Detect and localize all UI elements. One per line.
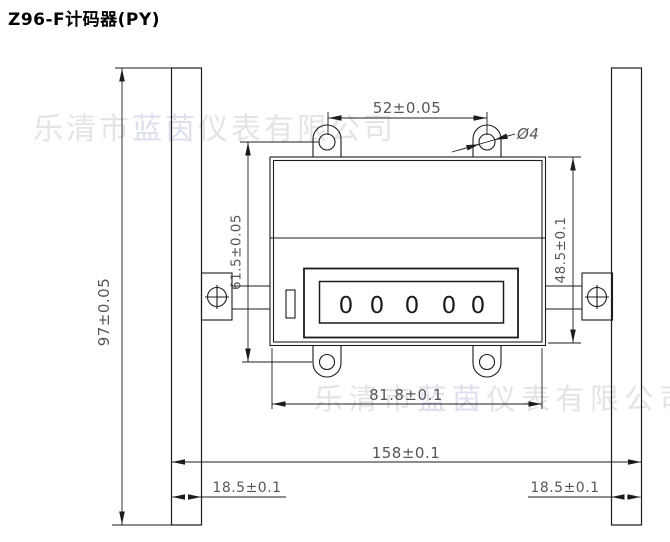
right-din-rail: [612, 68, 642, 525]
dim-hole-diameter: Ø4: [452, 125, 539, 152]
dim-rail-right: 18.5±0.1: [528, 480, 641, 497]
technical-drawing: 乐清市蓝茵仪表有限公司 乐清市蓝茵仪表有限公司: [0, 0, 670, 542]
screw-icon: [585, 285, 609, 309]
counter-digit: 0: [442, 293, 457, 319]
counter-digit: 0: [370, 293, 385, 319]
dimension-label: 18.5±0.1: [212, 480, 281, 496]
mounting-ear-bottom-left: [313, 345, 341, 377]
dim-body-height: 48.5±0.1: [548, 157, 581, 343]
right-mount-bracket: [582, 273, 613, 320]
counter-digit: 0: [405, 293, 420, 319]
dimension-label: 52±0.05: [373, 99, 442, 117]
watermark-company-suffix: 仪表有限公司: [487, 382, 670, 416]
reset-slot: [286, 290, 295, 318]
right-side-tab: [545, 286, 582, 309]
mounting-hole: [320, 355, 335, 370]
watermark-company-prefix: 乐清市: [33, 112, 132, 147]
dimension-label: 97±0.05: [95, 278, 113, 347]
dimension-label: Ø4: [516, 125, 539, 143]
page: { "title": "Z96-F计码器(PY)", "watermark": …: [0, 0, 670, 542]
counter-digit: 0: [339, 293, 354, 319]
counter-digits: 0 0 0 0 0: [339, 293, 486, 319]
watermark-brand-name: 蓝茵: [132, 112, 198, 147]
dimension-label: 61.5±0.05: [229, 214, 245, 290]
counter-digit: 0: [471, 293, 486, 319]
dimension-label: 18.5±0.1: [530, 480, 599, 496]
screw-icon: [205, 285, 229, 309]
dimension-label: 81.8±0.1: [369, 386, 443, 404]
dimension-label: 48.5±0.1: [553, 217, 569, 284]
mounting-hole: [480, 355, 495, 370]
dim-overall-width: 158±0.1: [172, 444, 641, 462]
dimension-label: 158±0.1: [372, 444, 441, 462]
left-mount-bracket: [202, 273, 233, 320]
watermark-bottom: 乐清市蓝茵仪表有限公司: [314, 382, 670, 416]
dim-rail-left: 18.5±0.1: [172, 480, 286, 497]
mounting-ear-bottom-right: [473, 345, 501, 377]
